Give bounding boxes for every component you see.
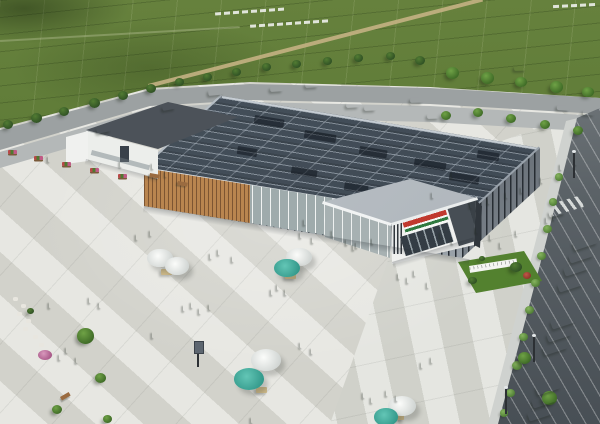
person bbox=[346, 238, 349, 245]
person bbox=[427, 281, 430, 288]
person bbox=[396, 394, 399, 401]
person bbox=[218, 248, 221, 255]
person bbox=[191, 301, 194, 308]
tree bbox=[415, 56, 425, 65]
person bbox=[209, 303, 212, 310]
person bbox=[300, 231, 303, 238]
greenhouse-row bbox=[553, 3, 598, 8]
flower-planter bbox=[62, 162, 71, 166]
person bbox=[311, 347, 314, 354]
person bbox=[271, 288, 274, 295]
person bbox=[59, 353, 62, 360]
tree bbox=[77, 328, 94, 343]
roof-vent bbox=[237, 146, 258, 157]
person bbox=[356, 241, 359, 248]
stepping-stone bbox=[17, 312, 22, 316]
person bbox=[353, 243, 356, 250]
tree bbox=[103, 415, 112, 423]
person bbox=[440, 231, 443, 238]
person bbox=[76, 356, 79, 363]
person bbox=[431, 356, 434, 363]
roof-vent bbox=[304, 130, 337, 143]
person bbox=[150, 229, 153, 236]
field-dirt-road bbox=[148, 0, 483, 88]
teal-umbrella bbox=[234, 368, 264, 390]
person bbox=[183, 304, 186, 311]
person bbox=[407, 276, 410, 283]
flower-planter bbox=[34, 156, 43, 160]
car bbox=[427, 113, 439, 118]
person bbox=[300, 341, 303, 348]
person bbox=[363, 391, 366, 398]
person bbox=[371, 396, 374, 403]
car bbox=[583, 110, 595, 116]
person bbox=[120, 160, 123, 167]
tree bbox=[232, 68, 241, 76]
person bbox=[49, 301, 52, 308]
person bbox=[152, 162, 155, 169]
tree bbox=[550, 81, 563, 93]
tree bbox=[481, 72, 494, 84]
tree bbox=[59, 107, 69, 116]
shrub bbox=[468, 277, 477, 285]
aerial-market-rendering: Aerial architectural rendering: traditio… bbox=[0, 0, 600, 424]
stepping-stone bbox=[21, 304, 26, 308]
person bbox=[304, 218, 307, 225]
stepping-stone bbox=[26, 319, 31, 323]
white-umbrella bbox=[165, 257, 189, 274]
tree bbox=[262, 63, 271, 71]
person bbox=[421, 361, 424, 368]
person bbox=[452, 171, 455, 178]
flower-planter bbox=[8, 150, 17, 154]
roof-vent bbox=[254, 115, 285, 128]
roof-vent bbox=[414, 158, 447, 171]
tree bbox=[89, 98, 100, 108]
greenhouse-row bbox=[250, 19, 330, 28]
tree bbox=[441, 111, 451, 120]
stepping-stone bbox=[23, 327, 28, 331]
field-boundary-line bbox=[0, 26, 240, 42]
tree bbox=[203, 73, 212, 81]
tree bbox=[531, 279, 540, 287]
tree bbox=[549, 198, 557, 205]
tree bbox=[506, 114, 516, 123]
tree bbox=[31, 113, 42, 123]
person bbox=[575, 158, 578, 165]
person bbox=[452, 237, 455, 244]
lamp-post bbox=[505, 388, 507, 414]
tree bbox=[543, 225, 552, 233]
person bbox=[66, 346, 69, 353]
teal-umbrella bbox=[374, 408, 398, 424]
tree bbox=[500, 409, 508, 416]
tree bbox=[519, 333, 528, 341]
tree bbox=[175, 78, 184, 86]
person bbox=[48, 155, 51, 162]
person bbox=[277, 283, 280, 290]
person bbox=[398, 272, 401, 279]
stepping-stone bbox=[39, 343, 44, 347]
lamp-post bbox=[573, 152, 575, 178]
tree bbox=[540, 120, 550, 129]
greenhouse-row bbox=[215, 8, 285, 16]
wayfinding-sign bbox=[197, 341, 199, 367]
flower-planter bbox=[118, 174, 127, 178]
person bbox=[500, 241, 503, 248]
person bbox=[560, 163, 563, 170]
person bbox=[152, 331, 155, 338]
person bbox=[490, 233, 493, 240]
stepping-stone bbox=[13, 297, 18, 301]
tree bbox=[525, 306, 534, 314]
white-umbrella bbox=[251, 349, 281, 371]
person bbox=[476, 226, 479, 233]
person bbox=[251, 416, 254, 423]
person bbox=[414, 269, 417, 276]
tree bbox=[146, 84, 156, 93]
pink-flower-bush bbox=[38, 350, 52, 360]
stepping-stone bbox=[33, 335, 38, 339]
tree bbox=[292, 60, 301, 68]
person bbox=[488, 197, 491, 204]
tree bbox=[518, 352, 531, 364]
tree bbox=[323, 57, 332, 65]
tree bbox=[27, 308, 34, 314]
tree bbox=[555, 173, 563, 180]
person bbox=[546, 216, 549, 223]
person bbox=[372, 237, 375, 244]
person bbox=[386, 389, 389, 396]
person bbox=[541, 176, 544, 183]
person bbox=[470, 201, 473, 208]
lamp-post bbox=[533, 336, 535, 362]
roof-vent bbox=[359, 146, 388, 158]
tree bbox=[537, 252, 546, 260]
person bbox=[432, 191, 435, 198]
person bbox=[312, 236, 315, 243]
roof-vent bbox=[291, 166, 318, 178]
tree bbox=[573, 126, 583, 135]
tree bbox=[506, 389, 515, 397]
car bbox=[514, 65, 526, 70]
tree bbox=[118, 91, 128, 100]
tree bbox=[386, 52, 395, 60]
person bbox=[521, 186, 524, 193]
person bbox=[232, 255, 235, 262]
tree bbox=[354, 54, 363, 62]
roof-vent bbox=[477, 150, 500, 161]
red-shrub bbox=[523, 272, 531, 279]
person bbox=[506, 191, 509, 198]
tree bbox=[3, 120, 13, 129]
tree bbox=[446, 67, 459, 79]
person bbox=[210, 252, 213, 259]
person bbox=[516, 229, 519, 236]
person bbox=[165, 170, 168, 177]
tree bbox=[52, 405, 62, 414]
person bbox=[285, 288, 288, 295]
person bbox=[553, 213, 556, 220]
person bbox=[99, 301, 102, 308]
car bbox=[364, 105, 376, 111]
person bbox=[332, 229, 335, 236]
person bbox=[136, 233, 139, 240]
teal-umbrella bbox=[274, 259, 300, 278]
tree bbox=[473, 108, 483, 117]
person bbox=[89, 296, 92, 303]
person bbox=[199, 307, 202, 314]
flower-planter bbox=[90, 168, 99, 172]
tree bbox=[95, 373, 106, 383]
